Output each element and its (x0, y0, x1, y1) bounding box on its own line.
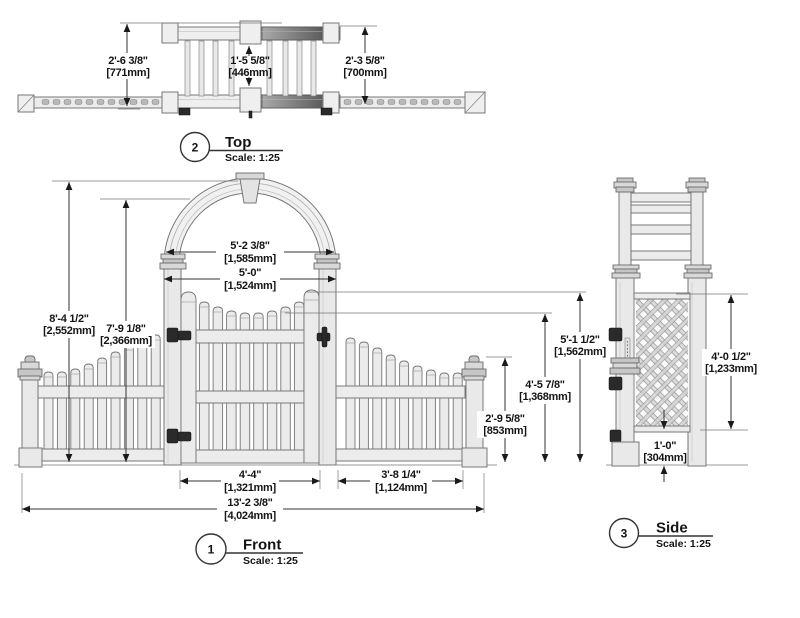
gate-bottom-rail (196, 450, 304, 463)
drawing-canvas: 2'-6 3/8" [771mm] 1'-5 5/8" [446mm] 2'-3… (0, 0, 800, 618)
top-view-end-post-right (465, 92, 485, 113)
right-wing-top-rail (336, 386, 465, 398)
dim-wing-width-metric: [1,124mm] (375, 482, 427, 494)
keystone (240, 179, 260, 203)
top-view-label: 2 Top Scale: 1:25 (181, 133, 284, 165)
dim-gate-width-metric: [1,321mm] (224, 482, 276, 494)
front-view: 8'-4 1/2" [2,552mm] 7'-9 1/8" [2,366mm] … (14, 173, 610, 567)
arch-post-right (319, 262, 336, 465)
side-view: 4'-0 1/2" [1,233mm] 1'-0" [304mm] 3 Side… (606, 178, 761, 550)
dim-overall-height-imperial: 8'-4 1/2" (49, 313, 88, 325)
top-view-end-post-left (18, 95, 34, 112)
side-post-collars (612, 265, 712, 278)
dim-post-spacing-imperial: 5'-0" (239, 267, 261, 279)
dim-gate-width-imperial: 4'-4" (239, 469, 261, 481)
arch-post-collar-left (160, 254, 186, 269)
dim-lattice-height-imperial: 4'-0 1/2" (711, 351, 750, 363)
top-view-hinge-mark-right (321, 108, 332, 115)
dim-overall-width-metric: [4,024mm] (224, 510, 276, 522)
dim-post-spacing-metric: [1,524mm] (224, 280, 276, 292)
gate-stile-right (304, 290, 319, 463)
front-view-number: 1 (208, 543, 215, 557)
dim-lattice-height-metric: [1,233mm] (705, 363, 757, 375)
dim-overall-width-imperial: 13'-2 3/8" (227, 497, 272, 509)
dim-clearance-height-metric: [2,366mm] (100, 335, 152, 347)
technical-drawing-page: 2'-6 3/8" [771mm] 1'-5 5/8" [446mm] 2'-3… (0, 0, 800, 618)
top-view-name: Top (225, 134, 251, 151)
side-view-name: Side (656, 520, 688, 537)
side-view-scale: Scale: 1:25 (656, 538, 711, 550)
dim-arch-width-imperial: 5'-2 3/8" (230, 240, 269, 252)
dim-bottom-clearance-imperial: 1'-0" (654, 440, 676, 452)
side-view-number: 3 (621, 527, 628, 541)
top-view-post-block-bottom (240, 88, 261, 112)
front-view-name: Front (243, 537, 281, 554)
left-wing-bottom-rail (38, 449, 164, 461)
dim-end-post-height-imperial: 2'-9 5/8" (485, 413, 524, 425)
top-view: 2'-6 3/8" [771mm] 1'-5 5/8" [446mm] 2'-3… (18, 21, 485, 164)
dim-clearance-height-imperial: 7'-9 1/8" (106, 323, 145, 335)
dim-gate-height-metric: [1,562mm] (554, 346, 606, 358)
dim-wing-width-imperial: 3'-8 1/4" (381, 469, 420, 481)
dim-frame-depth-imperial: 2'-3 5/8" (345, 55, 384, 67)
gate-mid-rail (196, 391, 304, 403)
top-view-post-block-top (240, 21, 261, 44)
top-view-hinge-mark-left (179, 108, 190, 115)
dim-picket-height-metric: [1,368mm] (519, 391, 571, 403)
front-view-scale: Scale: 1:25 (243, 555, 298, 567)
dim-gate-height-imperial: 5'-1 1/2" (560, 334, 599, 346)
fence-wing-left (18, 335, 164, 467)
dim-overall-depth-imperial: 2'-6 3/8" (108, 55, 147, 67)
side-upper-structure (614, 178, 708, 268)
dim-bottom-clearance-metric: [304mm] (643, 452, 687, 464)
front-view-label: 1 Front Scale: 1:25 (196, 534, 303, 567)
dim-end-post-height-metric: [853mm] (483, 425, 527, 437)
fence-wing-right (336, 338, 487, 467)
keystone-cap (236, 173, 264, 179)
dim-picket-height-imperial: 4'-5 7/8" (525, 379, 564, 391)
dim-inner-depth-imperial: 1'-5 5/8" (230, 55, 269, 67)
dim-inner-depth-metric: [446mm] (228, 67, 272, 79)
gate-pickets (200, 302, 304, 455)
dim-overall-depth-metric: [771mm] (106, 67, 150, 79)
side-view-label: 3 Side Scale: 1:25 (610, 519, 714, 551)
gate (167, 290, 330, 463)
left-wing-top-rail (38, 386, 164, 398)
side-lattice-panel (634, 293, 690, 432)
gate-top-rail (196, 330, 304, 343)
top-view-scale: Scale: 1:25 (225, 152, 280, 164)
dim-overall-height-metric: [2,552mm] (43, 325, 95, 337)
arch-post-collar-right (314, 254, 340, 269)
top-view-number: 2 (192, 141, 199, 155)
side-post-footer (612, 442, 639, 466)
right-wing-bottom-rail (336, 449, 465, 461)
top-view-latch-mark (249, 111, 252, 118)
dim-frame-depth-metric: [700mm] (343, 67, 387, 79)
end-post-left (18, 356, 42, 467)
dim-arch-width-metric: [1,585mm] (224, 253, 276, 265)
